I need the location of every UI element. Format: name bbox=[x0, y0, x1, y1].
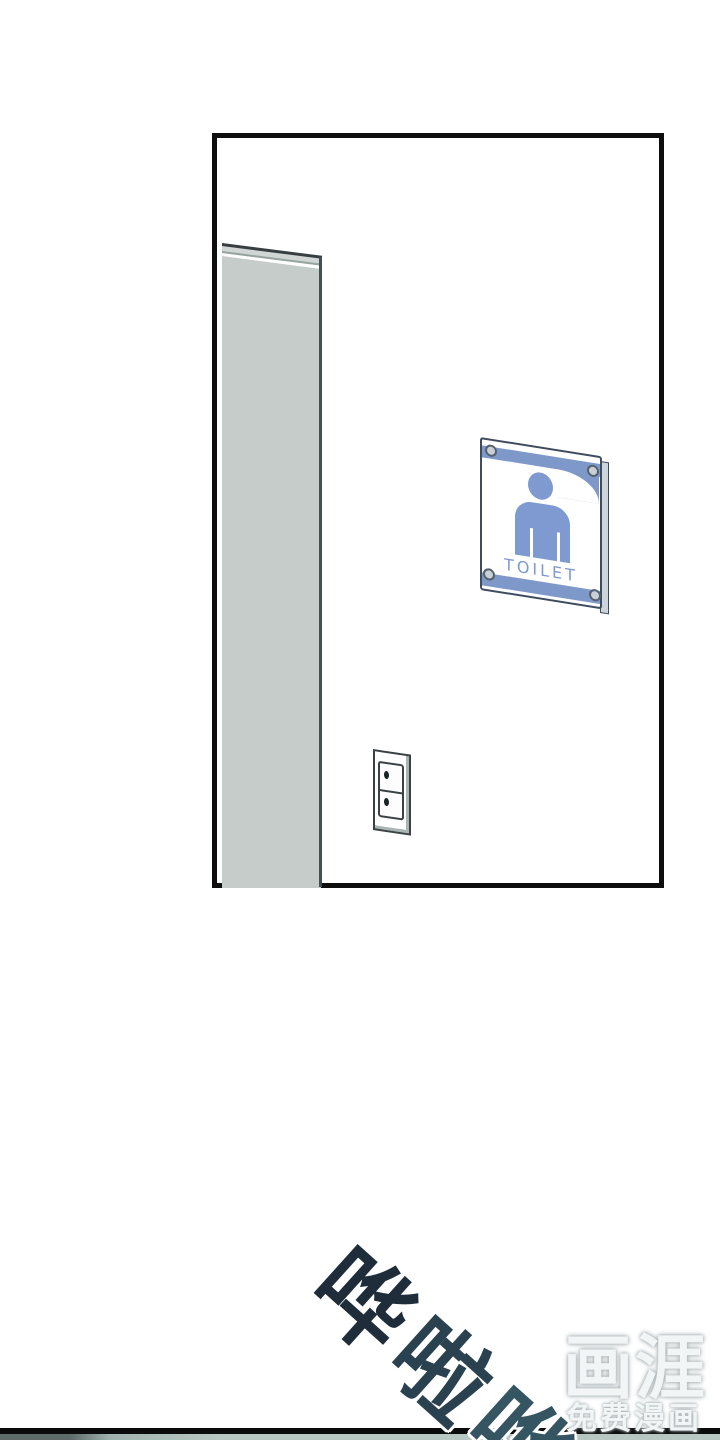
comic-panel: TOILET bbox=[212, 133, 664, 888]
comic-page: TOILET 画涯 免费漫画 哗啦哗啦 bbox=[0, 0, 720, 1440]
light-switch bbox=[373, 749, 411, 836]
person-arm-line bbox=[557, 532, 560, 561]
person-arm-line bbox=[530, 528, 533, 557]
toilet-sign: TOILET bbox=[480, 437, 611, 616]
door-panel bbox=[222, 244, 321, 888]
switch-dot-icon bbox=[384, 771, 389, 780]
person-body-icon bbox=[515, 500, 570, 564]
switch-divider bbox=[380, 789, 402, 794]
sign-plate: TOILET bbox=[480, 437, 602, 609]
switch-dot-icon bbox=[384, 798, 389, 807]
switch-rockers bbox=[378, 761, 404, 821]
door-right-edge bbox=[319, 257, 322, 887]
